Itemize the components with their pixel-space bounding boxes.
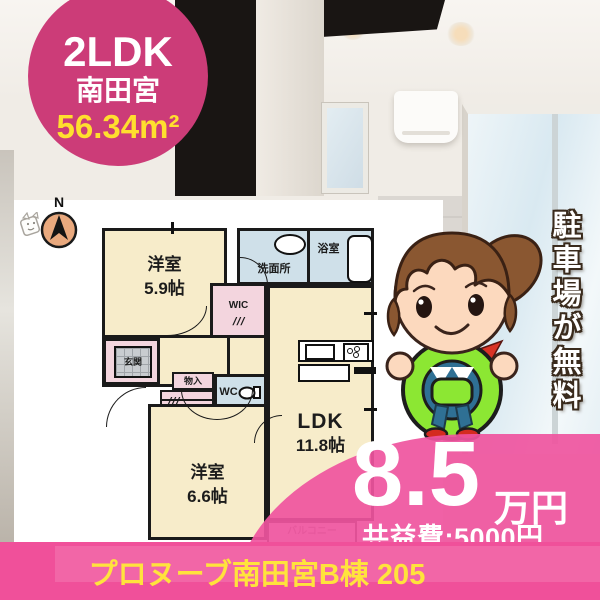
mascot-driver — [370, 203, 550, 453]
hand — [491, 353, 517, 379]
window — [322, 103, 368, 193]
sliding-door-mark: /// — [231, 316, 246, 328]
genkan-label: 玄関 — [116, 357, 150, 367]
kitchen-counter-lower — [298, 364, 350, 382]
bedroom1-label: 洋室 — [105, 255, 224, 275]
eye — [416, 296, 432, 318]
room-wic: WIC /// — [210, 283, 267, 338]
door-arc — [106, 387, 146, 427]
window-tick — [171, 222, 174, 234]
price-amount: 8.5 — [352, 428, 480, 520]
wic-label: WIC — [213, 300, 264, 312]
cat-doodle-icon — [18, 212, 44, 242]
kitchen-sink-icon — [305, 344, 335, 360]
air-conditioner — [394, 91, 458, 143]
eye — [468, 294, 484, 316]
compass-icon: N — [38, 194, 80, 252]
genkan-tile: 玄関 — [114, 346, 152, 378]
room-bathroom: 浴室 — [307, 228, 374, 285]
listing-image: N 洋室 5.9帖 洗面所 浴室 — [0, 0, 600, 600]
bedroom2-label: 洋室 — [151, 463, 264, 483]
storage-label: 物入 — [174, 376, 212, 386]
room-bedroom1: 洋室 5.9帖 — [102, 228, 227, 338]
room-genkan: 玄関 — [103, 338, 160, 385]
side-lock — [388, 299, 399, 335]
badge-name: 南田宮 — [76, 74, 160, 108]
photo-left-edge — [0, 150, 14, 550]
downlight-icon — [446, 22, 476, 46]
bedroom1-size: 5.9帖 — [105, 279, 224, 299]
stove-icon — [343, 343, 369, 362]
footer-strip: プロヌーブ南田宮B棟 205 — [0, 542, 600, 600]
badge-layout: 2LDK — [63, 30, 173, 74]
kitchen-counter — [298, 340, 374, 362]
building-name: プロヌーブ南田宮B棟 205 — [0, 551, 557, 593]
photo-pillar — [256, 0, 324, 196]
compass-north-label: N — [54, 194, 64, 210]
side-lock — [505, 295, 516, 331]
room-bedroom2: 洋室 6.6帖 — [148, 404, 267, 540]
hand — [387, 353, 413, 379]
bedroom2-size: 6.6帖 — [151, 487, 264, 507]
badge-area: 56.34m² — [57, 108, 180, 146]
